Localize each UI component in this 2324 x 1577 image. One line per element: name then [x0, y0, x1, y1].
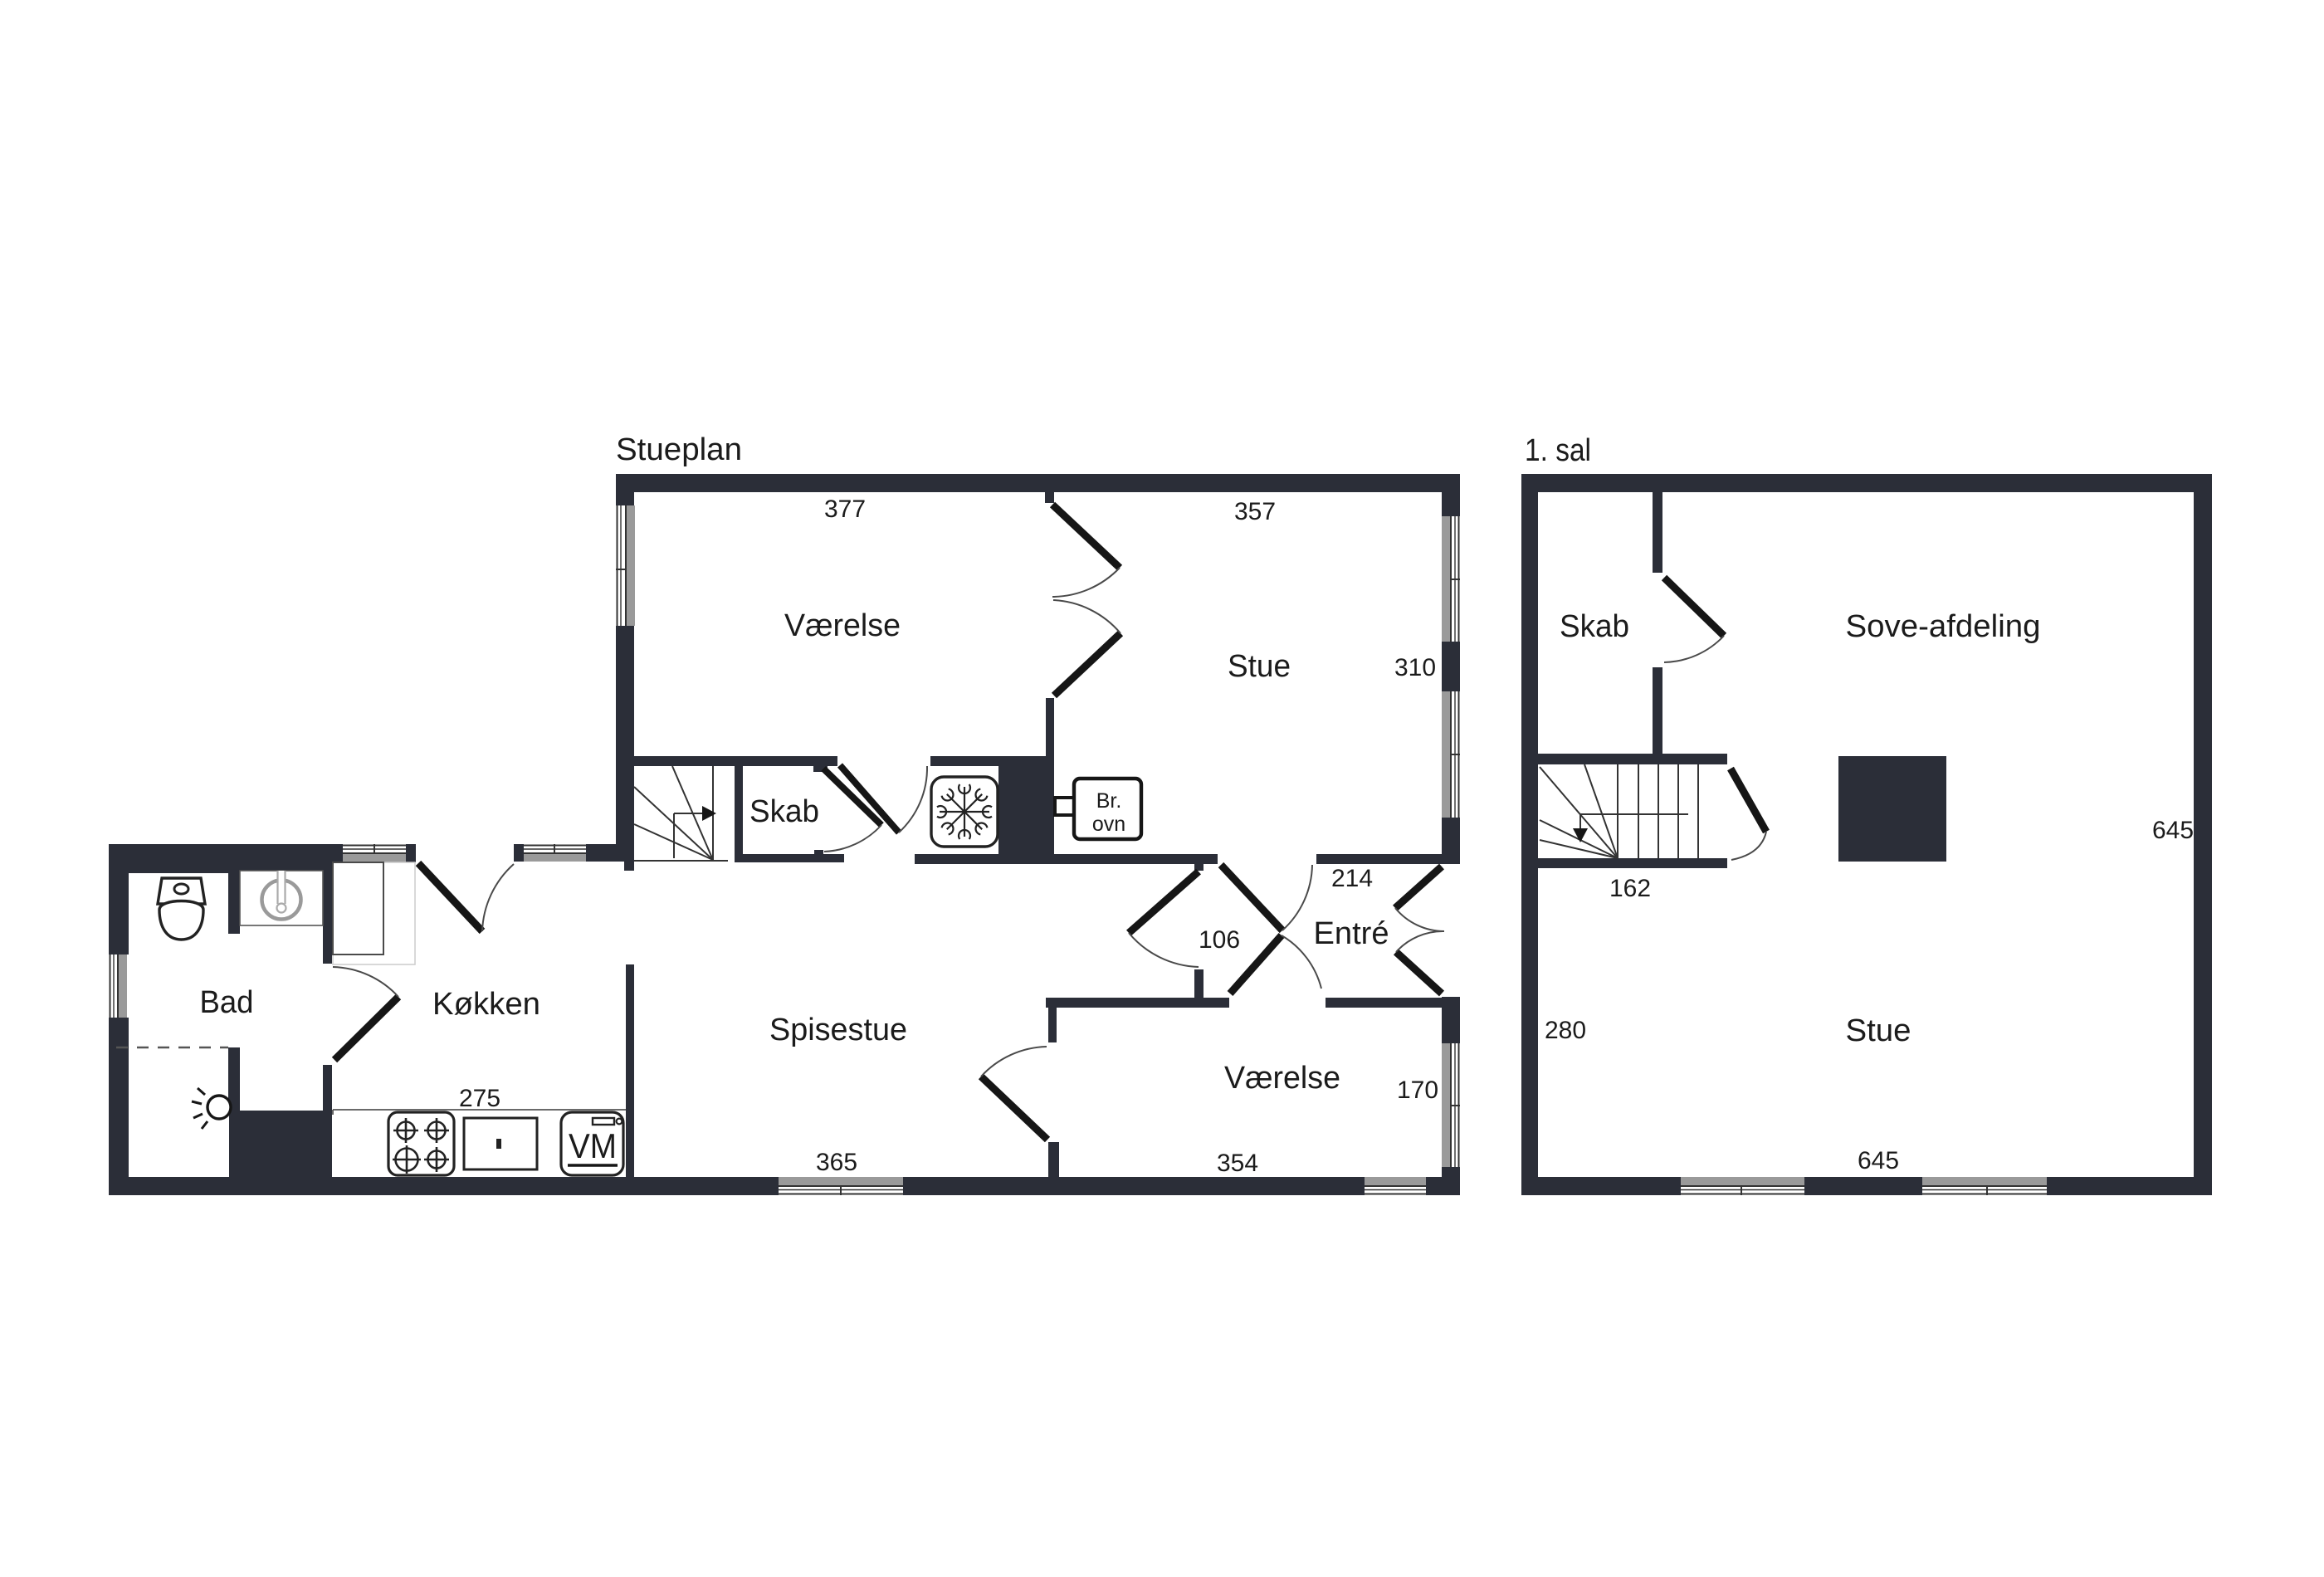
svg-text:214: 214	[1331, 865, 1373, 892]
svg-text:Bad: Bad	[200, 985, 254, 1020]
svg-text:310: 310	[1394, 654, 1436, 681]
svg-text:Spisestue: Spisestue	[769, 1013, 907, 1047]
svg-text:645: 645	[1858, 1147, 1899, 1174]
svg-text:377: 377	[824, 496, 866, 523]
svg-text:Br.: Br.	[1096, 789, 1122, 813]
svg-text:Køkken: Køkken	[432, 987, 540, 1022]
svg-text:Værelse: Værelse	[1224, 1061, 1340, 1096]
svg-text:365: 365	[816, 1149, 857, 1176]
svg-text:Værelse: Værelse	[784, 608, 901, 643]
svg-text:Stue: Stue	[1228, 649, 1291, 684]
svg-text:VM: VM	[569, 1126, 617, 1165]
svg-text:1. sal: 1. sal	[1525, 433, 1591, 468]
svg-text:Skab: Skab	[1560, 609, 1629, 644]
svg-text:Sove-afdeling: Sove-afdeling	[1846, 609, 2041, 644]
svg-text:Skab: Skab	[749, 794, 819, 829]
svg-text:354: 354	[1217, 1150, 1258, 1177]
svg-text:645: 645	[2152, 817, 2194, 844]
svg-text:162: 162	[1609, 875, 1651, 902]
svg-text:280: 280	[1545, 1017, 1586, 1044]
svg-text:Stue: Stue	[1846, 1013, 1911, 1048]
svg-text:106: 106	[1199, 926, 1240, 954]
svg-text:170: 170	[1397, 1077, 1438, 1104]
svg-text:ovn: ovn	[1092, 813, 1125, 836]
svg-text:Stueplan: Stueplan	[616, 432, 742, 467]
svg-text:275: 275	[459, 1085, 500, 1112]
svg-text:357: 357	[1234, 498, 1276, 525]
svg-text:Entré: Entré	[1314, 916, 1389, 951]
